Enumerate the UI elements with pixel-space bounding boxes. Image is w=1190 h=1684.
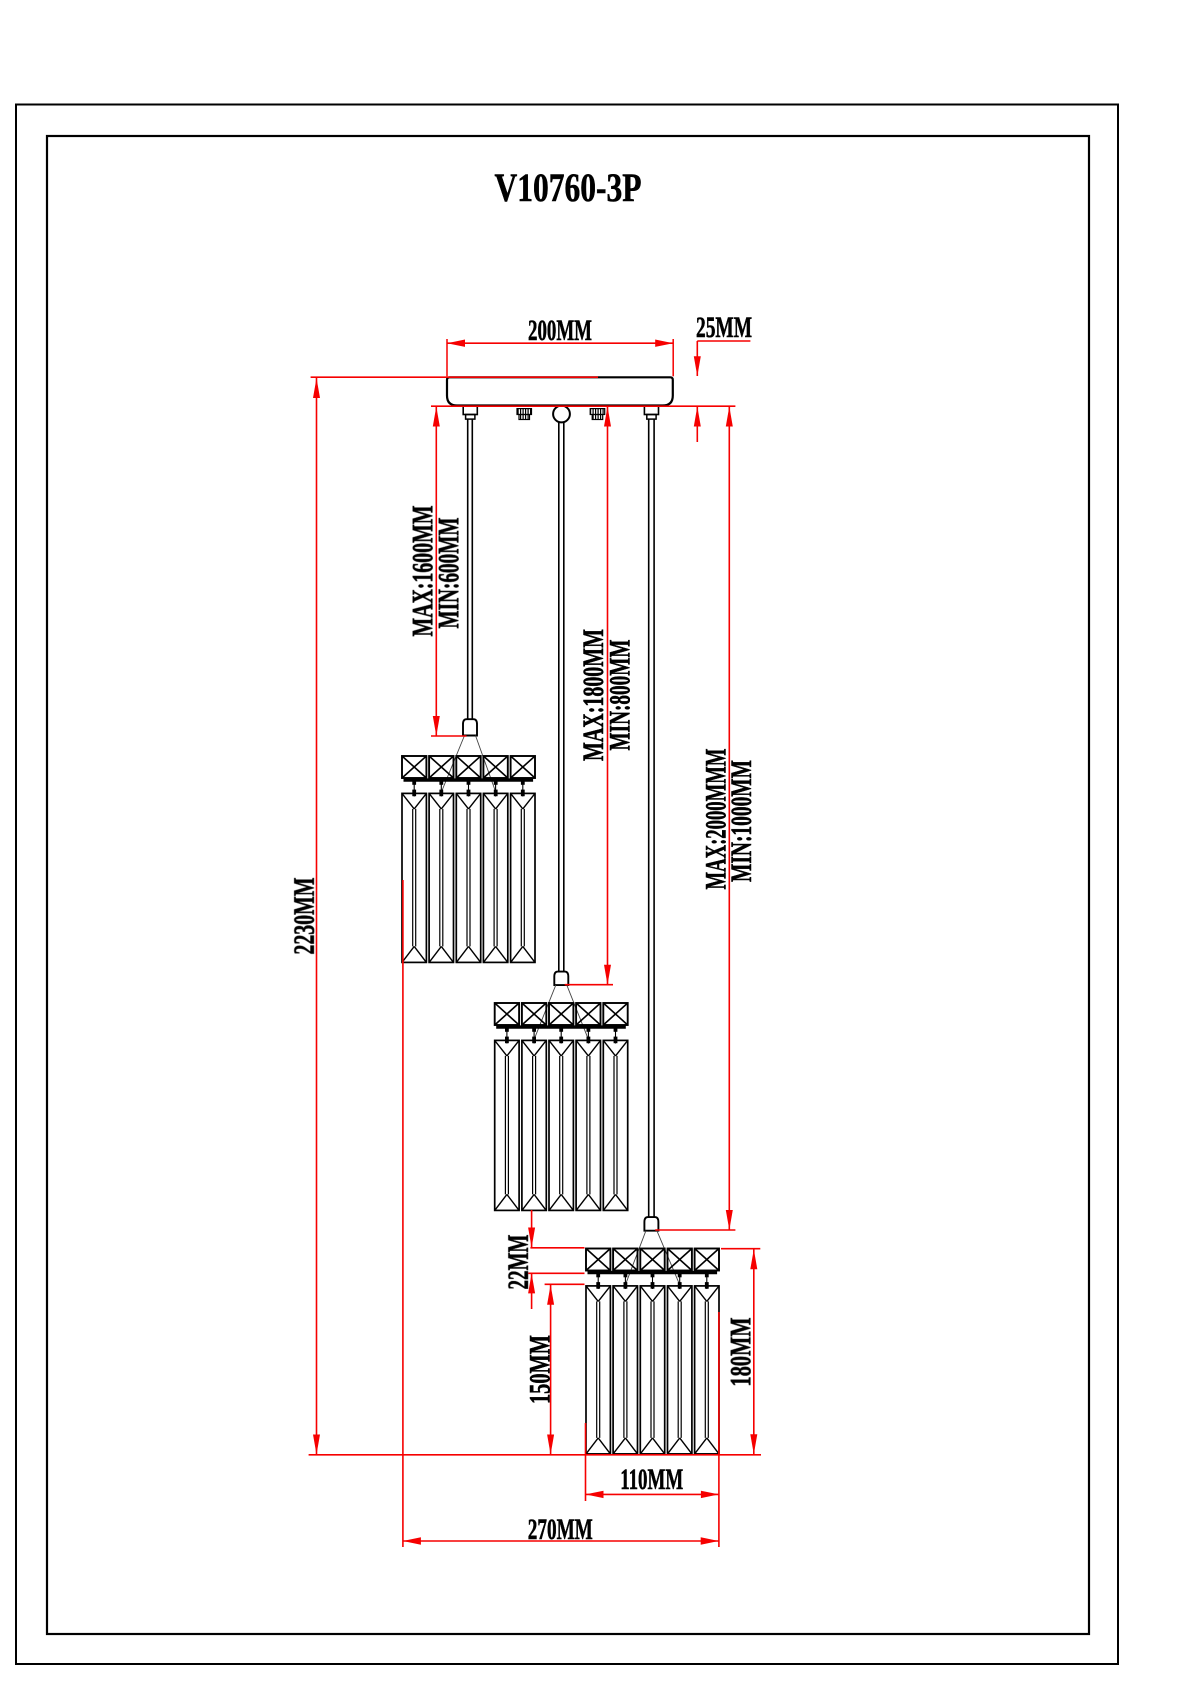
svg-text:22MM: 22MM	[502, 1235, 535, 1290]
svg-text:180MM: 180MM	[724, 1318, 757, 1387]
svg-text:V10760-3P: V10760-3P	[495, 165, 642, 210]
svg-text:MIN:800MM: MIN:800MM	[604, 640, 637, 751]
svg-text:MIN:1000MM: MIN:1000MM	[725, 760, 758, 882]
svg-text:200MM: 200MM	[528, 314, 592, 347]
svg-text:150MM: 150MM	[524, 1335, 557, 1404]
svg-text:2230MM: 2230MM	[288, 878, 321, 955]
svg-text:110MM: 110MM	[620, 1463, 683, 1496]
svg-text:25MM: 25MM	[696, 311, 752, 344]
svg-text:270MM: 270MM	[528, 1513, 593, 1546]
svg-text:MIN:600MM: MIN:600MM	[432, 518, 465, 629]
